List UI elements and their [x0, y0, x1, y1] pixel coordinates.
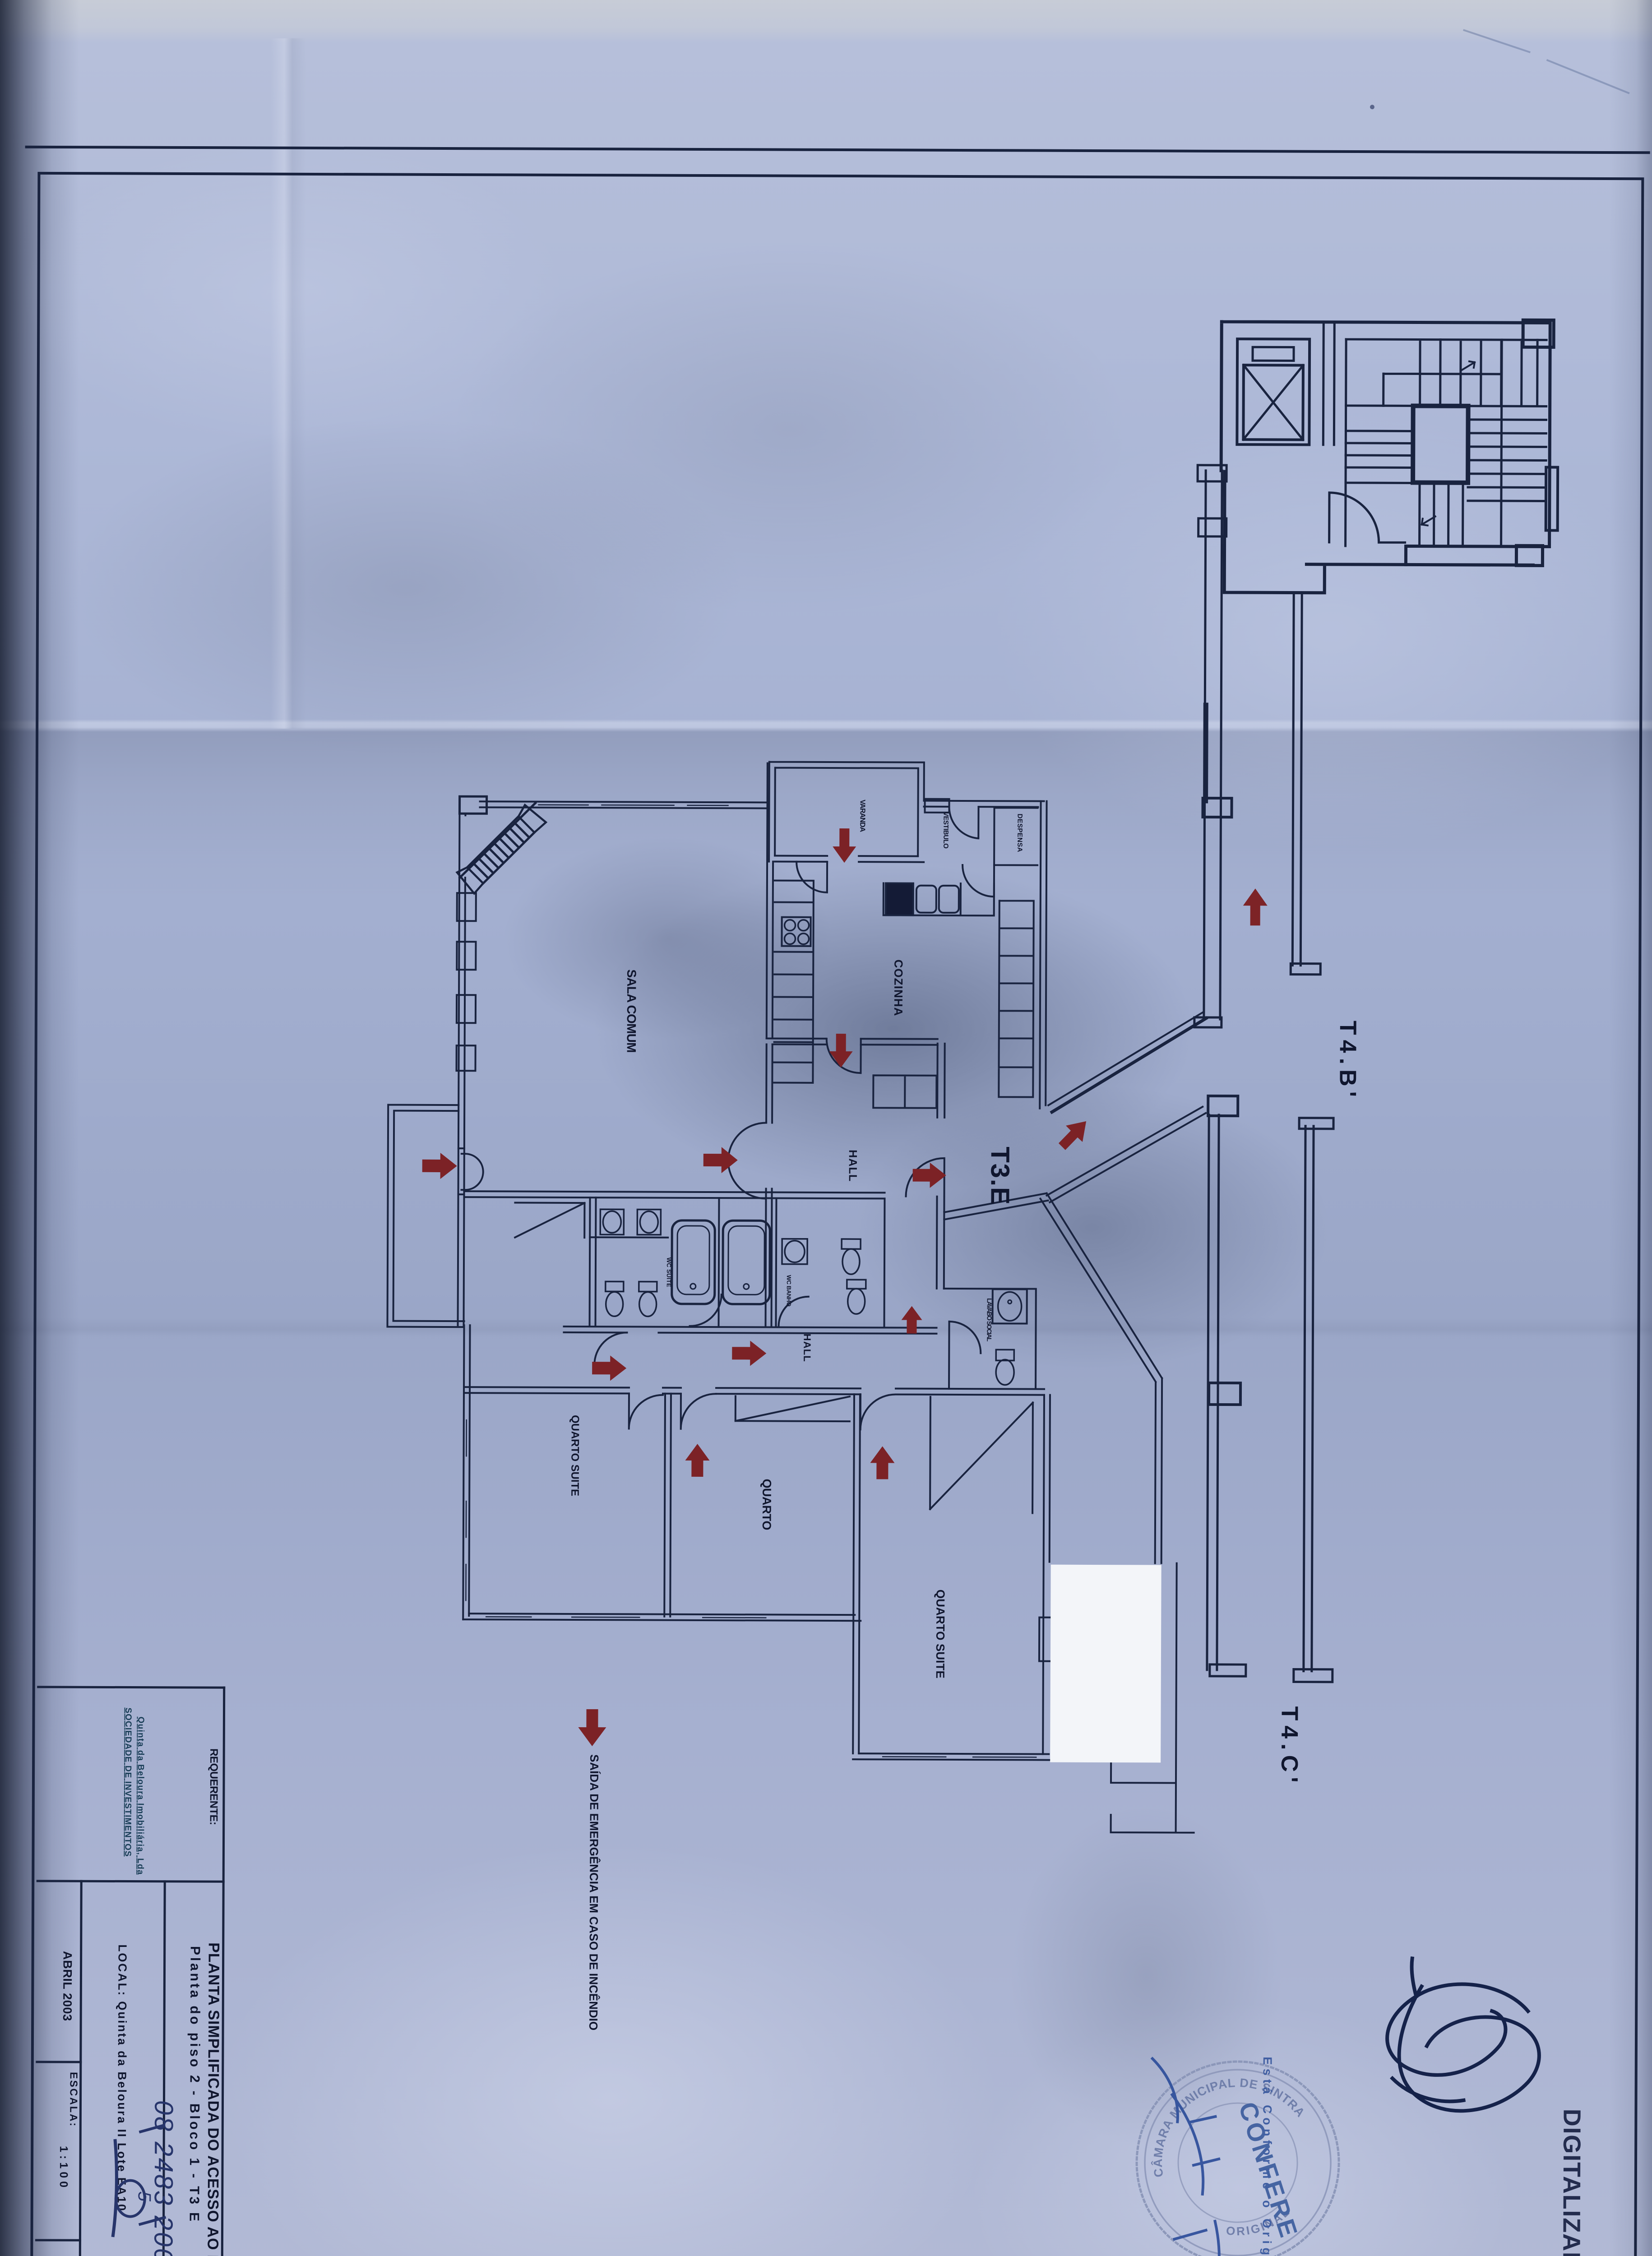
- svg-text:ESCALA:: ESCALA:: [68, 2072, 79, 2126]
- svg-text:WC BANHO: WC BANHO: [786, 1275, 792, 1307]
- svg-text:HALL: HALL: [801, 1334, 813, 1362]
- svg-text:REQUERENTE:: REQUERENTE:: [208, 1748, 220, 1825]
- svg-text:5: 5: [134, 2191, 154, 2202]
- svg-text:T3.E: T3.E: [985, 1146, 1014, 1206]
- svg-text:QUARTO SUITE: QUARTO SUITE: [569, 1415, 581, 1496]
- svg-text:QUARTO: QUARTO: [760, 1479, 773, 1530]
- svg-text:COZINHA: COZINHA: [892, 959, 905, 1016]
- svg-text:ABRIL 2003: ABRIL 2003: [60, 1951, 74, 2021]
- svg-text:T4.C': T4.C': [1276, 1706, 1303, 1787]
- svg-text:VARANDA: VARANDA: [858, 800, 866, 832]
- svg-text:SAÍDA DE EMERGÊNCIA EM CASO DE: SAÍDA DE EMERGÊNCIA EM CASO DE INCÊNDIO: [587, 1754, 601, 2030]
- svg-text:VESTIBULO: VESTIBULO: [942, 812, 949, 849]
- svg-text:08 2483 2001 FT H: 08 2483 2001 FT H: [148, 2100, 179, 2256]
- svg-text:SALA COMUM: SALA COMUM: [625, 969, 639, 1053]
- svg-text:Quinta da Beloura Imobiliária,: Quinta da Beloura Imobiliária, Lda: [135, 1717, 145, 1875]
- svg-text:PLANTA SIMPLIFICADA DO ACESSO: PLANTA SIMPLIFICADA DO ACESSO AO FOGO: [204, 1942, 222, 2256]
- svg-text:DESPENSA: DESPENSA: [1016, 814, 1023, 852]
- svg-text:WC SUITE: WC SUITE: [666, 1257, 672, 1287]
- svg-text:QUARTO SUITE: QUARTO SUITE: [934, 1590, 948, 1678]
- svg-text:1:100: 1:100: [57, 2146, 70, 2187]
- svg-text:SOCIEDADE DE INVESTIMENTOS: SOCIEDADE DE INVESTIMENTOS: [123, 1708, 133, 1857]
- svg-text:Planta do piso 2 - Bloco 1 - T: Planta do piso 2 - Bloco 1 - T3 E: [187, 1946, 203, 2221]
- svg-text:T4.B': T4.B': [1334, 1021, 1361, 1102]
- svg-text:HALL: HALL: [847, 1150, 859, 1181]
- svg-text:DIGITALIZADO: DIGITALIZADO: [1558, 2109, 1585, 2256]
- svg-text:LAVABO SOCIAL: LAVABO SOCIAL: [986, 1298, 993, 1341]
